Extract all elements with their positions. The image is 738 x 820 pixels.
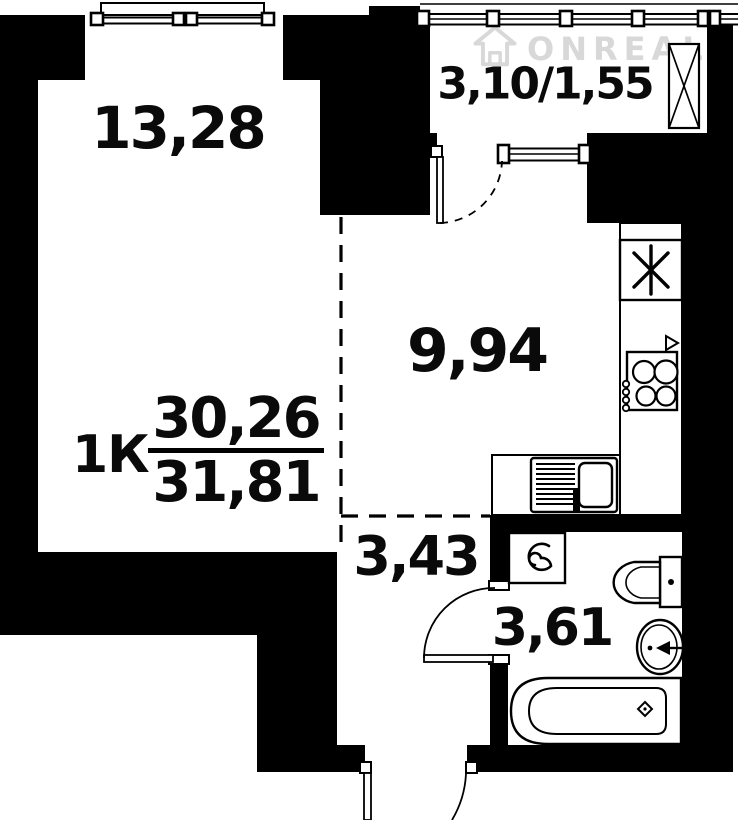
balcony-door xyxy=(431,146,502,223)
zone-boundaries xyxy=(341,217,490,552)
toilet-flush-button xyxy=(668,579,674,585)
window-mullion xyxy=(698,11,708,26)
door-jamb xyxy=(466,762,477,773)
wall-left xyxy=(0,15,38,635)
knob xyxy=(623,405,629,411)
wall-top-left xyxy=(0,15,85,80)
knob xyxy=(623,381,629,387)
washing-machine-icon xyxy=(509,533,565,583)
wall-right xyxy=(682,163,733,772)
wall-balcony-left xyxy=(369,6,420,133)
washing-machine-body xyxy=(509,533,565,583)
floor-plan-drawing xyxy=(0,0,738,820)
window-mullion xyxy=(173,13,184,25)
window-mullion xyxy=(186,13,197,25)
washbasin-icon xyxy=(637,620,683,674)
kitchen-window xyxy=(498,145,590,163)
window-mullion xyxy=(91,13,103,25)
window-mullion xyxy=(417,11,429,26)
door-jamb xyxy=(431,146,442,157)
balcony-shaft-box xyxy=(669,44,699,128)
sink-drainboard xyxy=(536,464,575,504)
window-mullion xyxy=(710,11,720,26)
floor-plan-canvas: ONREAL ® xyxy=(0,0,738,820)
window-mullion xyxy=(560,11,572,26)
window-mullion xyxy=(262,13,274,25)
burner xyxy=(655,361,678,384)
door-swing-arc xyxy=(452,774,466,820)
wall-living-bottom xyxy=(0,552,337,635)
entrance-door xyxy=(360,762,477,820)
wall-bathroom-left-upper xyxy=(490,515,508,591)
door-leaf xyxy=(424,655,493,662)
living-room-bay-window xyxy=(91,3,274,25)
door-leaf xyxy=(437,157,443,223)
door-jamb xyxy=(360,762,371,773)
wall-hall-left-column xyxy=(257,635,337,772)
tub-drain-dot xyxy=(643,707,646,710)
wall-balcony-right xyxy=(707,25,733,163)
window-mullion xyxy=(498,145,509,163)
wall-bathroom-left-lower xyxy=(490,664,508,745)
sink-faucet xyxy=(573,488,580,511)
knob xyxy=(623,397,629,403)
bathroom-door xyxy=(424,581,509,664)
burner xyxy=(633,361,655,383)
basin-drain-dot xyxy=(648,646,653,651)
door-swing-arc xyxy=(424,588,495,658)
window-mullion xyxy=(487,11,499,26)
sink-bowl xyxy=(579,463,612,507)
wall-bottom xyxy=(467,745,733,772)
burner xyxy=(657,387,676,406)
door-leaf xyxy=(364,773,371,820)
bathtub-icon xyxy=(511,678,681,744)
balcony-glazing xyxy=(414,4,738,26)
knob xyxy=(623,389,629,395)
door-swing-arc xyxy=(440,161,502,223)
window-mullion xyxy=(579,145,590,163)
kitchen-sink-icon xyxy=(492,455,620,515)
wall-kitchen-bathroom xyxy=(490,515,682,532)
toilet-icon xyxy=(614,557,682,607)
burner xyxy=(637,387,656,406)
window-mullion xyxy=(632,11,644,26)
